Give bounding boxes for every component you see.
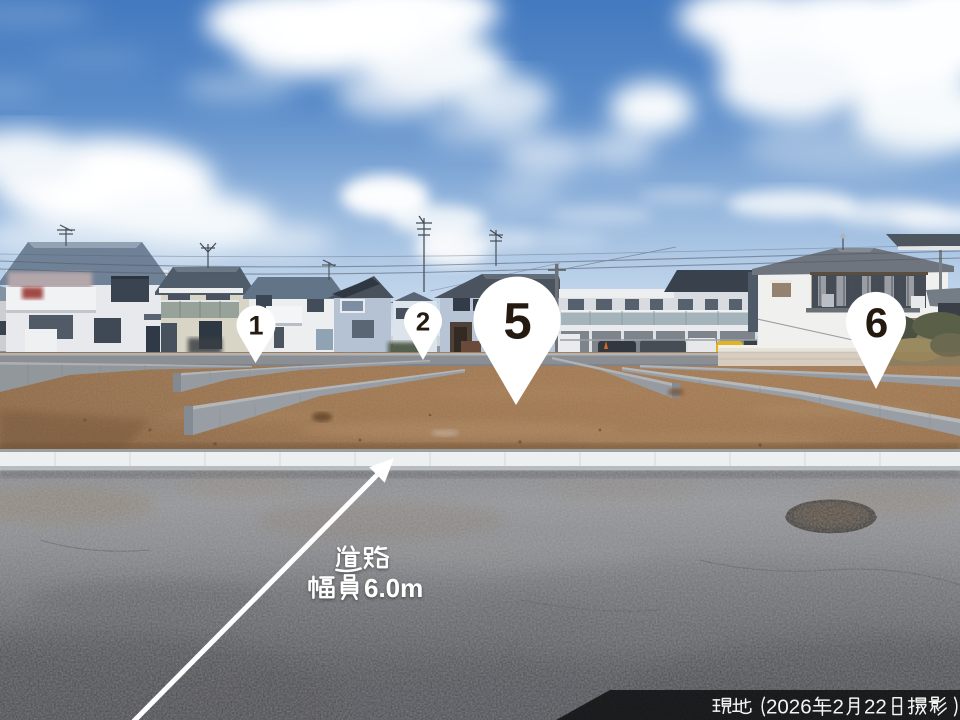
svg-text:22: 22: [864, 696, 887, 719]
svg-text:2: 2: [416, 306, 430, 336]
svg-text:2: 2: [833, 696, 844, 719]
svg-text:6: 6: [865, 299, 888, 346]
svg-text:5: 5: [503, 292, 531, 349]
svg-text:1: 1: [248, 311, 263, 341]
svg-text:6.0m: 6.0m: [364, 573, 423, 603]
svg-text:2026: 2026: [766, 696, 812, 719]
